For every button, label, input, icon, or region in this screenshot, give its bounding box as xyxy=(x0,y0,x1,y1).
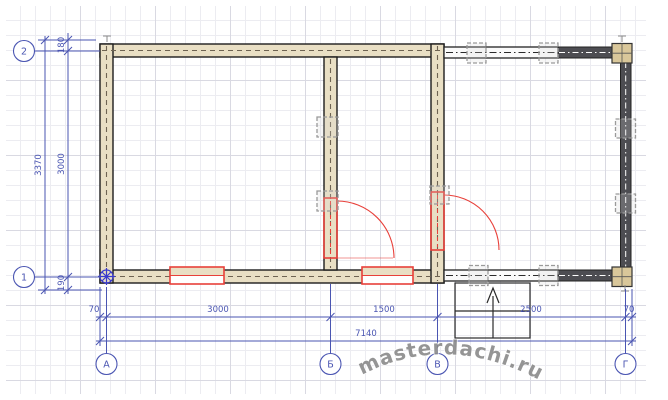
floor-plan-svg: 3370 3000 180 190 70 3000 1500 2500 70 7… xyxy=(0,0,668,400)
axis-label-b: Б xyxy=(327,360,334,371)
stairs xyxy=(455,283,530,338)
post-marker xyxy=(539,43,558,63)
axis-label-a: А xyxy=(103,360,110,371)
post-marker xyxy=(539,266,558,286)
dim-text-span-bv: 1500 xyxy=(373,305,395,315)
svg-text:masterdachi.ru: masterdachi.ru xyxy=(354,335,548,385)
post-marker xyxy=(430,186,449,204)
terrace xyxy=(444,44,632,287)
house-walls xyxy=(100,44,444,283)
axis-label-g: Г xyxy=(623,360,629,371)
floor-plan-canvas: 3370 3000 180 190 70 3000 1500 2500 70 7… xyxy=(0,0,668,400)
doors xyxy=(324,192,499,258)
window-1 xyxy=(170,267,224,284)
corner-post-bottom-right xyxy=(612,267,632,287)
dim-text-total: 7140 xyxy=(355,329,377,339)
dim-text-span-vg: 2500 xyxy=(520,305,542,315)
post-markers xyxy=(317,43,636,286)
axis-label-v: В xyxy=(434,360,441,371)
dim-text-span-ab: 3000 xyxy=(207,305,229,315)
window-2 xyxy=(362,267,413,284)
door-swing-arc xyxy=(337,201,394,258)
watermark-text: masterdachi.ru xyxy=(354,335,548,385)
door-swing-arc xyxy=(444,195,499,250)
post-marker xyxy=(467,43,486,63)
dim-text-top-offset: 180 xyxy=(57,37,67,53)
wall-centerlines xyxy=(102,46,442,281)
dim-text-axis-v: 3000 xyxy=(57,153,67,175)
post-marker xyxy=(469,266,488,286)
dim-text-offset-right: 70 xyxy=(624,305,635,315)
dim-text-offset-left: 70 xyxy=(89,305,100,315)
dim-text-overall-v: 3370 xyxy=(34,154,44,176)
post-marker xyxy=(616,194,636,213)
post-marker xyxy=(317,117,338,137)
centerline-marks xyxy=(103,36,629,291)
post-marker xyxy=(317,191,338,211)
dim-text-bottom-offset: 190 xyxy=(57,275,67,291)
axis-label-1: 1 xyxy=(21,273,27,284)
axis-label-2: 2 xyxy=(21,47,27,58)
corner-post-top-right xyxy=(612,44,632,64)
post-marker xyxy=(616,119,636,138)
watermark: masterdachi.ru xyxy=(354,335,550,386)
